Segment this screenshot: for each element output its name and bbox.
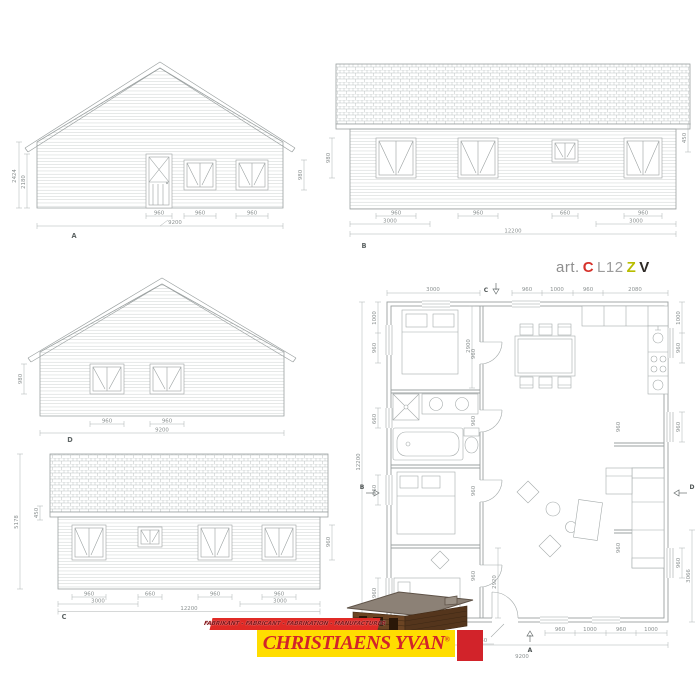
window-1 [376, 138, 416, 178]
dim-label: 3000 [629, 219, 643, 225]
dim-label: 960 [555, 627, 566, 633]
dim-label: 450 [34, 507, 40, 518]
window-1 [184, 160, 216, 190]
dim-label: 960 [616, 627, 627, 633]
dim-label: 450 [682, 132, 688, 143]
dim-label: 2180 [21, 175, 27, 189]
elevation-d-drawing: 980 960 960 9200 D [12, 276, 318, 444]
dim-label: 960 [522, 287, 533, 293]
dim-label: 960 [84, 592, 95, 598]
dim-label: 3000 [426, 287, 440, 293]
dim-label: 960 [326, 536, 332, 547]
dim-label: 960 [154, 211, 165, 217]
dim-label: 1000 [550, 287, 564, 293]
window-2-small [138, 527, 162, 547]
dim-label: 2920 [492, 575, 498, 589]
elevation-a-panel: 2424 2180 980 960 960 960 9200 A [12, 56, 312, 246]
dim-label: 1000 [676, 311, 682, 325]
blueprint-sheet: 2424 2180 980 960 960 960 9200 A [0, 0, 700, 700]
marker-d: D [690, 484, 695, 491]
dim-label: 980 [298, 169, 304, 180]
view-label-b: B [361, 242, 366, 250]
dim-label: 960 [583, 287, 594, 293]
art-prefix: art. [556, 259, 580, 276]
dim-label: 660 [560, 211, 571, 217]
dining-set [515, 324, 575, 388]
manufacturer-logo: FABRIKANT - FABRICANT - FABRIKATION - MA… [205, 590, 473, 668]
dim-label: 960 [372, 484, 378, 495]
dim-label: 1000 [644, 627, 658, 633]
article-code: art.CL12ZV [556, 259, 653, 276]
dim-label: 980 [326, 152, 332, 163]
dim-label: 9200 [168, 220, 182, 226]
cabin-dormer [445, 596, 457, 605]
window-4 [624, 138, 662, 178]
kitchen [582, 306, 668, 394]
window-2 [236, 160, 268, 190]
window-2 [458, 138, 498, 178]
dim-label: 1000 [372, 311, 378, 325]
front-door [146, 154, 172, 208]
window-4 [262, 525, 296, 560]
dim-label: 3000 [383, 219, 397, 225]
dim-label: 2080 [628, 287, 642, 293]
logo-tagline-banner: FABRIKANT - FABRICANT - FABRIKATION - MA… [210, 618, 381, 630]
dim-label: 960 [471, 348, 477, 359]
bed-1 [402, 310, 458, 374]
dim-label: 660 [145, 592, 156, 598]
dim-label: 960 [471, 570, 477, 581]
logo-red-square [457, 630, 483, 661]
dim-label: 960 [391, 211, 402, 217]
dim-label: 9200 [515, 654, 529, 660]
view-label-a: A [71, 232, 77, 240]
elevation-b-panel: 980 450 960 960 660 960 3000 3000 12200 … [306, 52, 698, 258]
dim-label: 960 [247, 211, 258, 217]
registered-mark: ® [445, 635, 450, 643]
living-set [517, 468, 664, 568]
marker-a: A [528, 647, 533, 654]
fascia-board [336, 124, 690, 129]
art-code-z: Z [627, 259, 637, 276]
dim-label: 2424 [12, 169, 18, 183]
dim-label: 960 [638, 211, 649, 217]
dim-label: 3066 [686, 569, 692, 583]
view-label-c: C [62, 613, 67, 620]
art-code-c: C [583, 259, 594, 276]
gable-wall [40, 284, 284, 416]
dim-label: 960 [471, 485, 477, 496]
dim-label: 1000 [583, 627, 597, 633]
dim-label: 960 [162, 419, 173, 425]
window-1 [72, 525, 106, 560]
dim-label: 12200 [504, 229, 522, 235]
dim-label: 960 [616, 421, 622, 432]
roof-shingles [336, 64, 690, 124]
bed-2 [397, 472, 455, 534]
dim-label: 12200 [356, 453, 362, 471]
dim-label: 5178 [14, 515, 20, 529]
elevation-a-drawing: 2424 2180 980 960 960 960 9200 A [12, 56, 312, 242]
elevation-b-drawing: 980 450 960 960 660 960 3000 3000 12200 … [306, 52, 698, 254]
dim-label: 960 [676, 342, 682, 353]
window-2 [150, 364, 184, 394]
marker-b: B [360, 484, 365, 491]
roof-shingles [50, 454, 328, 512]
window-1 [90, 364, 124, 394]
logo-tagline-text: FABRIKANT - FABRICANT - FABRIKATION - MA… [204, 621, 387, 627]
dim-label: 960 [195, 211, 206, 217]
dim-label: 960 [676, 421, 682, 432]
fascia-board [50, 512, 328, 517]
dim-label: 9200 [155, 428, 169, 434]
dim-label: 3000 [91, 599, 105, 605]
dim-label: 980 [18, 373, 24, 384]
dim-label: 960 [473, 211, 484, 217]
dim-label: 12200 [180, 606, 198, 612]
art-code-v: V [639, 259, 650, 276]
logo-brand-band: CHRISTIAENS YVAN® [257, 630, 455, 657]
marker-c: C [484, 287, 489, 294]
art-code-l12: L12 [597, 259, 624, 276]
window-3-small [552, 140, 578, 162]
elevation-d-panel: 980 960 960 9200 D [12, 276, 318, 448]
dim-label: 960 [616, 542, 622, 553]
dim-label: 960 [676, 557, 682, 568]
dim-label: 660 [372, 413, 378, 424]
dim-label: 960 [372, 342, 378, 353]
bathroom-fixtures [393, 394, 479, 460]
window-3 [198, 525, 232, 560]
dim-label: 960 [102, 419, 113, 425]
furniture [393, 306, 668, 614]
logo-brand-name: CHRISTIAENS YVAN® [263, 632, 450, 655]
dim-label: 960 [471, 415, 477, 426]
